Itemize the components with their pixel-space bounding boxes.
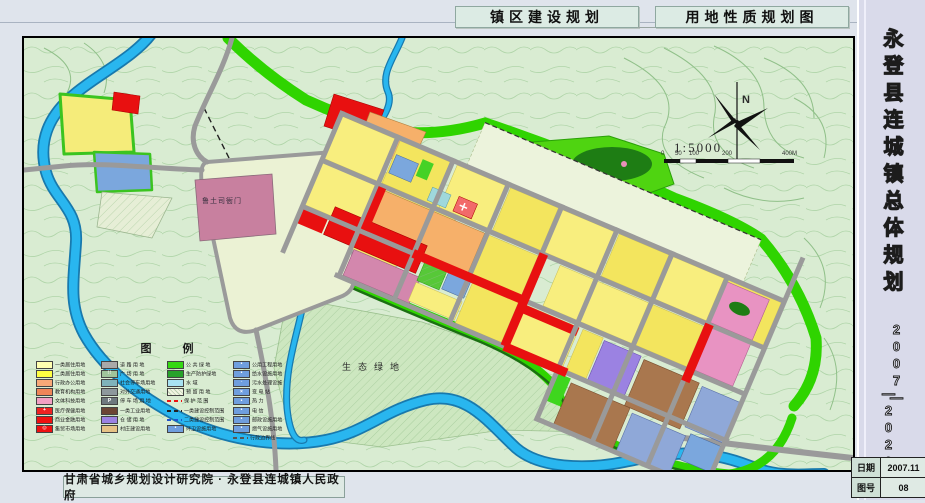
legend-item: 一类居住用地 <box>36 360 101 369</box>
scale-tick-50: 50 <box>675 151 682 157</box>
legend-label: 电 信 <box>252 407 263 414</box>
heritage-site-label: 鲁土司衙门 <box>202 196 242 206</box>
legend-swatch <box>36 416 53 424</box>
legend-swatch <box>101 361 118 369</box>
legend-label: 集贸市场用地 <box>55 425 85 432</box>
legend-item: 对外交通用地 <box>101 388 167 397</box>
map-frame: 生态绿地 鲁土司衙门 N 1:5000 0 50 100 200 400M 图 … <box>22 36 855 472</box>
legend-item: •邮政设施用地 <box>233 415 298 424</box>
scale-tick-0: 0 <box>661 151 664 157</box>
legend-item: •热 力 <box>233 397 298 406</box>
scale-bar <box>664 159 794 163</box>
legend-label: 公 共 绿 地 <box>186 361 210 368</box>
legend-swatch: ◎ <box>36 425 53 433</box>
legend-label: 公用工程用地 <box>252 361 282 368</box>
legend-swatch: + <box>36 407 53 415</box>
legend-swatch-icon: • <box>241 362 243 367</box>
legend-item: •燃气设施用地 <box>233 424 298 433</box>
legend-item: 文体科技用地 <box>36 397 101 406</box>
scale-tick-400: 400M <box>782 151 797 157</box>
legend-column: 道 路 用 地∷广 场 用 地社会停车场用地对外交通用地P停 车 场 用 地一类… <box>101 360 167 443</box>
heritage-site-parcel <box>195 174 276 241</box>
legend-item: •环卫设施用地 <box>167 424 233 433</box>
legend-item: 一类工业用地 <box>101 406 167 415</box>
legend-swatch <box>167 361 184 369</box>
legend-swatch-icon: • <box>175 426 177 431</box>
legend-item: 水 域 <box>167 378 233 387</box>
date-value: 2007.11 <box>881 458 925 477</box>
legend-swatch <box>36 379 53 387</box>
legend-swatch <box>167 388 184 396</box>
legend-label: 教育机构用地 <box>55 389 85 396</box>
legend-swatch: • <box>233 397 250 405</box>
legend-label: 医疗保健用地 <box>55 407 85 414</box>
north-label: N <box>742 94 750 106</box>
legend-item: ◎集贸市场用地 <box>36 424 101 433</box>
legend-swatch <box>167 379 184 387</box>
scale-tick-100: 100 <box>689 151 699 157</box>
legend-swatch <box>167 408 182 414</box>
legend-swatch: × <box>233 388 250 396</box>
legend-columns: 一类居住用地二类居住用地行政办公用地教育机构用地文体科技用地+医疗保健用地商业金… <box>36 360 298 443</box>
legend-item: 保 护 范 围 <box>167 397 233 406</box>
legend-swatch-icon: • <box>241 399 243 404</box>
legend-swatch-icon: ◦ <box>241 380 243 385</box>
legend-swatch: ◦ <box>233 379 250 387</box>
legend-item: 二类居住用地 <box>36 369 101 378</box>
legend-column: 公 共 绿 地生产防护绿地水 域预 留 用 地保 护 范 围一类建设控制范围二类… <box>167 360 233 443</box>
legend-swatch-icon: P <box>108 399 111 404</box>
legend-column: •公用工程用地•给水设施用地◦污水处理设施×变 电 站•热 力•电 信•邮政设施… <box>233 360 298 443</box>
legend-label: 生产防护绿地 <box>186 370 216 377</box>
legend-label: 社会停车场用地 <box>120 379 155 386</box>
legend-swatch: • <box>233 370 250 378</box>
plan-title-vertical: 永登县连城镇总体规划 <box>877 28 906 328</box>
legend-label: 一类工业用地 <box>120 407 150 414</box>
legend-label: 停 车 场 用 地 <box>120 398 151 405</box>
legend-swatch-icon: • <box>241 408 243 413</box>
legend-swatch <box>167 370 184 378</box>
legend-swatch-icon: + <box>43 408 46 413</box>
legend-swatch-icon: ◎ <box>42 426 46 431</box>
legend-label: 保 护 范 围 <box>184 398 208 405</box>
legend-item: 二类建设控制范围 <box>167 415 233 424</box>
legend-label: 热 力 <box>252 398 263 405</box>
legend-swatch <box>36 361 53 369</box>
legend-label: 邮政设施用地 <box>252 416 282 423</box>
legend-item: 社会停车场用地 <box>101 378 167 387</box>
legend: 图 例 一类居住用地二类居住用地行政办公用地教育机构用地文体科技用地+医疗保健用… <box>36 340 298 466</box>
legend-item: 公 共 绿 地 <box>167 360 233 369</box>
legend-swatch <box>101 425 118 433</box>
credit-box: 甘肃省城乡规划设计研究院 · 永登县连城镇人民政府 <box>63 476 345 498</box>
legend-item: 行政办公用地 <box>36 378 101 387</box>
title-connector <box>637 24 655 28</box>
sidebar-pinstripe <box>864 0 866 500</box>
legend-label: 预 留 用 地 <box>186 389 210 396</box>
legend-label: 燃气设施用地 <box>252 425 282 432</box>
legend-label: 水 域 <box>186 379 197 386</box>
legend-swatch-icon: • <box>241 371 243 376</box>
legend-swatch-icon: ∷ <box>108 371 111 376</box>
date-label: 日期 <box>852 458 881 477</box>
legend-item: 仓 储 用 地 <box>101 415 167 424</box>
title-block-table: 日期 2007.11 图号 08 <box>851 457 925 498</box>
legend-swatch <box>101 416 118 424</box>
legend-label: 仓 储 用 地 <box>120 416 144 423</box>
legend-swatch-icon: • <box>241 426 243 431</box>
legend-title: 图 例 <box>36 340 298 356</box>
legend-label: 污水处理设施 <box>252 379 282 386</box>
legend-swatch: • <box>233 361 250 369</box>
legend-swatch-icon: • <box>241 417 243 422</box>
legend-swatch <box>101 407 118 415</box>
legend-swatch <box>36 370 53 378</box>
legend-label: 二类建设控制范围 <box>184 416 224 423</box>
legend-label: 一类居住用地 <box>55 361 85 368</box>
table-row: 日期 2007.11 <box>852 458 925 478</box>
legend-swatch: P <box>101 397 118 405</box>
legend-label: 一类建设控制范围 <box>184 407 224 414</box>
legend-swatch <box>36 397 53 405</box>
legend-swatch <box>167 417 182 423</box>
legend-label: 文体科技用地 <box>55 398 85 405</box>
legend-swatch <box>101 388 118 396</box>
legend-item: P停 车 场 用 地 <box>101 397 167 406</box>
legend-swatch <box>233 435 248 441</box>
sheet-number-label: 图号 <box>852 478 881 497</box>
legend-swatch: • <box>233 425 250 433</box>
legend-item: ◦污水处理设施 <box>233 378 298 387</box>
legend-swatch: • <box>167 425 184 433</box>
legend-item: 生产防护绿地 <box>167 369 233 378</box>
legend-label: 给水设施用地 <box>252 370 282 377</box>
plan-sheet: 镇区建设规划 用地性质规划图 <box>0 0 925 500</box>
legend-item: •公用工程用地 <box>233 360 298 369</box>
legend-swatch: • <box>233 407 250 415</box>
legend-item: •电 信 <box>233 406 298 415</box>
legend-swatch: ∷ <box>101 370 118 378</box>
table-row: 图号 08 <box>852 478 925 497</box>
title-series: 镇区建设规划 <box>455 6 639 28</box>
legend-item: 教育机构用地 <box>36 388 101 397</box>
legend-item: 一类建设控制范围 <box>167 406 233 415</box>
legend-label: 广 场 用 地 <box>120 370 144 377</box>
legend-label: 对外交通用地 <box>120 389 150 396</box>
title-sheet-name: 用地性质规划图 <box>655 6 849 28</box>
sidebar: 永登县连城镇总体规划 2007— —2020 <box>857 0 925 500</box>
legend-swatch <box>36 388 53 396</box>
legend-label: 行政办公用地 <box>55 379 85 386</box>
legend-column: 一类居住用地二类居住用地行政办公用地教育机构用地文体科技用地+医疗保健用地商业金… <box>36 360 101 443</box>
legend-swatch <box>101 379 118 387</box>
legend-label: 商业金融用地 <box>55 416 85 423</box>
legend-label: 村庄建设用地 <box>120 425 150 432</box>
legend-item: ∷广 场 用 地 <box>101 369 167 378</box>
legend-label: 变 电 站 <box>252 389 270 396</box>
legend-swatch-icon: × <box>240 390 243 395</box>
legend-label: 环卫设施用地 <box>186 425 216 432</box>
eco-green-label: 生态绿地 <box>342 360 406 373</box>
legend-swatch <box>167 398 182 404</box>
legend-item: 商业金融用地 <box>36 415 101 424</box>
legend-label: 二类居住用地 <box>55 370 85 377</box>
legend-swatch: • <box>233 416 250 424</box>
legend-label: 行政边界线 <box>250 434 275 441</box>
legend-item: 村庄建设用地 <box>101 424 167 433</box>
legend-item: +医疗保健用地 <box>36 406 101 415</box>
legend-item: ×变 电 站 <box>233 388 298 397</box>
legend-item: 行政边界线 <box>233 434 298 443</box>
legend-item: •给水设施用地 <box>233 369 298 378</box>
scale-tick-200: 200 <box>722 151 732 157</box>
legend-item: 道 路 用 地 <box>101 360 167 369</box>
legend-label: 道 路 用 地 <box>120 361 144 368</box>
legend-item: 预 留 用 地 <box>167 388 233 397</box>
sheet-number-value: 08 <box>881 478 925 497</box>
